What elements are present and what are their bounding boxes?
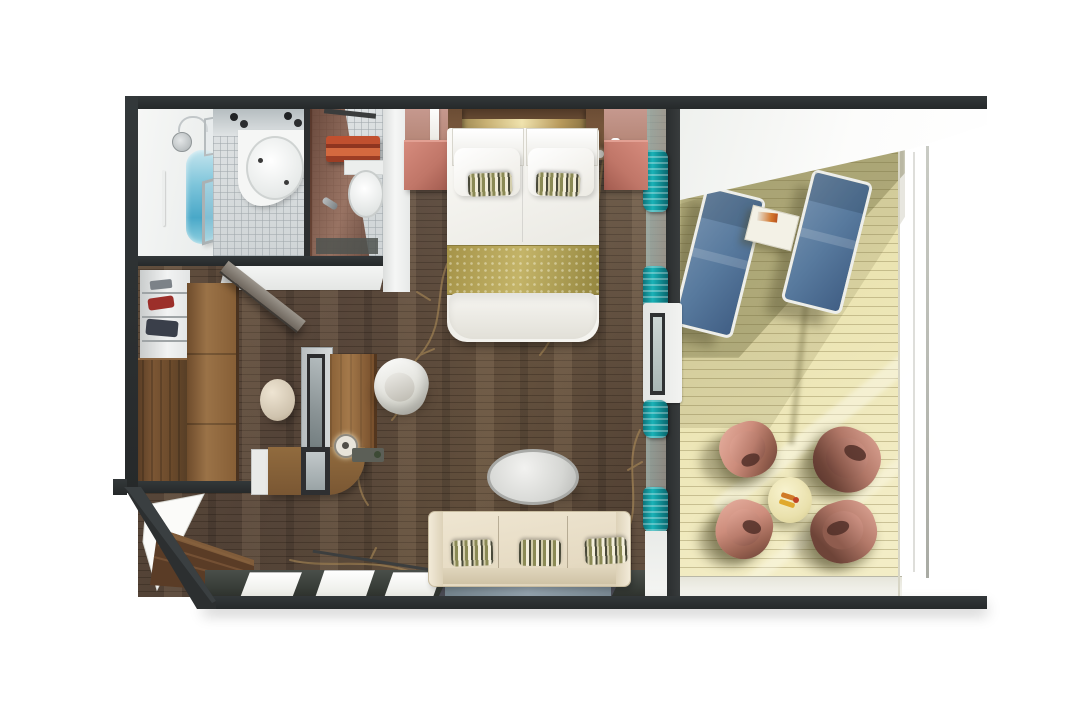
- chamfer-wall: [0, 0, 1067, 711]
- floorplan-scene: [0, 0, 1067, 711]
